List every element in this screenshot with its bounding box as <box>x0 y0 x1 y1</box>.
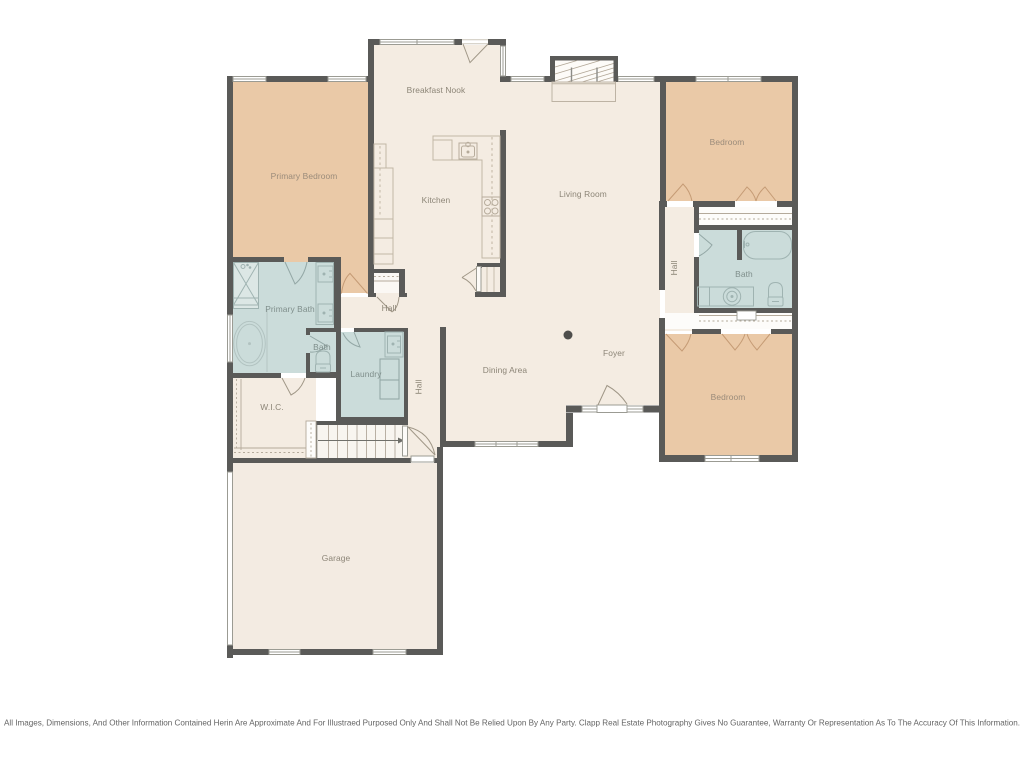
svg-text:Laundry: Laundry <box>351 369 383 379</box>
svg-text:Hall: Hall <box>414 380 424 395</box>
svg-text:Bedroom: Bedroom <box>710 137 745 147</box>
svg-text:Foyer: Foyer <box>603 348 625 358</box>
svg-text:Hall: Hall <box>669 261 679 276</box>
svg-text:All Images, Dimensions, And Ot: All Images, Dimensions, And Other Inform… <box>4 718 1020 728</box>
svg-text:Primary Bedroom: Primary Bedroom <box>271 171 338 181</box>
svg-text:Garage: Garage <box>322 553 351 563</box>
svg-text:Hall: Hall <box>382 303 397 313</box>
svg-text:Bath: Bath <box>313 342 331 352</box>
svg-text:Living Room: Living Room <box>559 189 607 199</box>
svg-text:W.I.C.: W.I.C. <box>260 402 283 412</box>
svg-text:Dining Area: Dining Area <box>483 365 528 375</box>
svg-text:Primary Bath: Primary Bath <box>265 304 315 314</box>
svg-text:Bath: Bath <box>735 269 753 279</box>
svg-text:Breakfast Nook: Breakfast Nook <box>407 85 466 95</box>
svg-text:Bedroom: Bedroom <box>711 392 746 402</box>
svg-text:Kitchen: Kitchen <box>422 195 451 205</box>
